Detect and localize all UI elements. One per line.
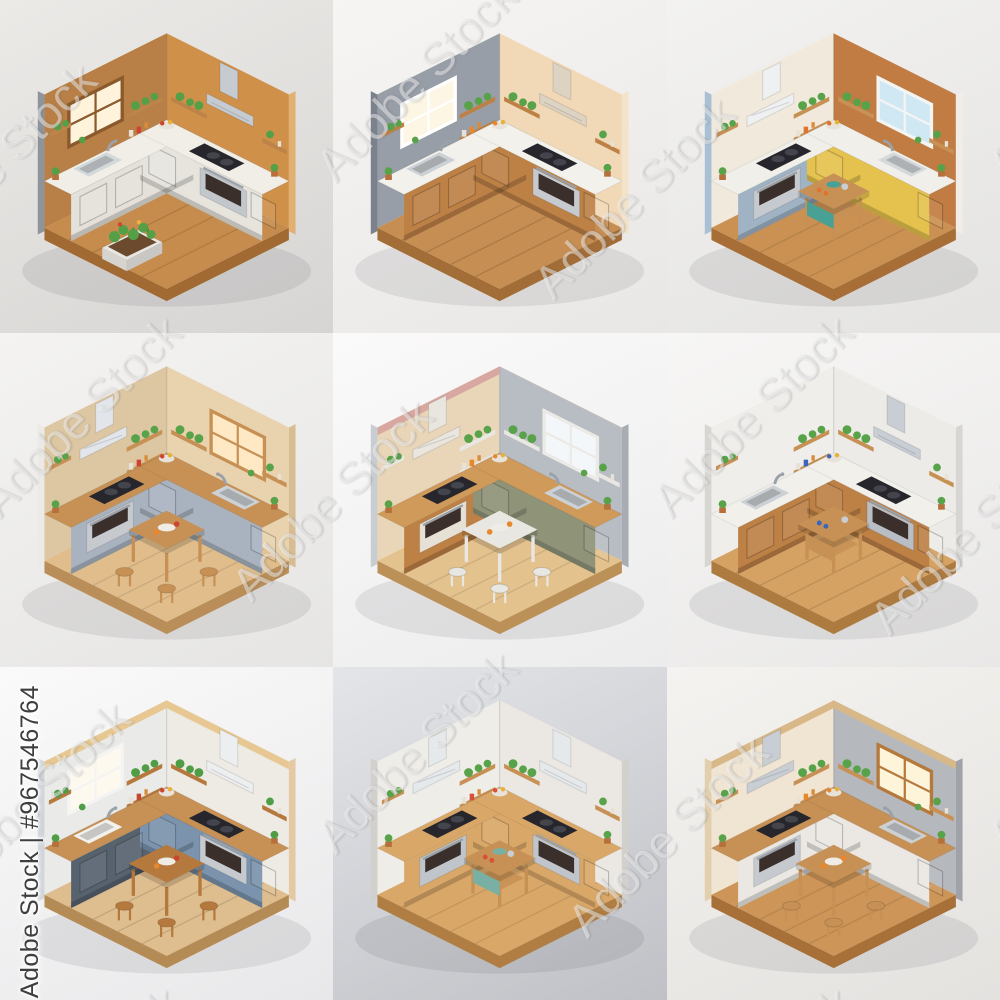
kitchen-render bbox=[667, 0, 1000, 333]
kitchen-render bbox=[333, 333, 666, 666]
isometric-kitchen-illustration bbox=[0, 333, 333, 666]
left-wall-edge bbox=[704, 758, 711, 901]
isometric-kitchen-illustration bbox=[0, 0, 333, 333]
right-wall-edge bbox=[956, 91, 963, 234]
left-wall-edge bbox=[371, 758, 378, 901]
left-wall-edge bbox=[38, 758, 45, 901]
left-wall-edge bbox=[371, 91, 378, 234]
isometric-kitchen-illustration bbox=[0, 667, 333, 1000]
kitchen-render bbox=[333, 0, 666, 333]
right-wall-edge bbox=[622, 758, 629, 901]
left-wall-edge bbox=[704, 424, 711, 567]
right-wall-edge bbox=[622, 424, 629, 567]
left-wall-edge bbox=[704, 91, 711, 234]
left-wall-edge bbox=[371, 424, 378, 567]
kitchen-render bbox=[333, 667, 666, 1000]
kitchen-render bbox=[667, 667, 1000, 1000]
stock-image-collage: Adobe StockAdobe StockAdobe StockAdobe S… bbox=[0, 0, 1000, 1000]
kitchen-render bbox=[667, 333, 1000, 666]
right-wall-edge bbox=[289, 91, 296, 234]
isometric-kitchen-illustration bbox=[333, 333, 666, 666]
kitchen-render bbox=[0, 333, 333, 666]
left-wall-edge bbox=[38, 91, 45, 234]
isometric-kitchen-illustration bbox=[667, 333, 1000, 666]
isometric-kitchen-illustration bbox=[667, 0, 1000, 333]
isometric-kitchen-illustration bbox=[333, 0, 666, 333]
right-wall-edge bbox=[956, 758, 963, 901]
right-wall-edge bbox=[289, 758, 296, 901]
isometric-kitchen-illustration bbox=[333, 667, 666, 1000]
kitchen-render bbox=[0, 0, 333, 333]
right-wall-edge bbox=[289, 424, 296, 567]
right-wall-edge bbox=[622, 91, 629, 234]
isometric-kitchen-illustration bbox=[667, 667, 1000, 1000]
right-wall-edge bbox=[956, 424, 963, 567]
left-wall-edge bbox=[38, 424, 45, 567]
kitchen-render bbox=[0, 667, 333, 1000]
